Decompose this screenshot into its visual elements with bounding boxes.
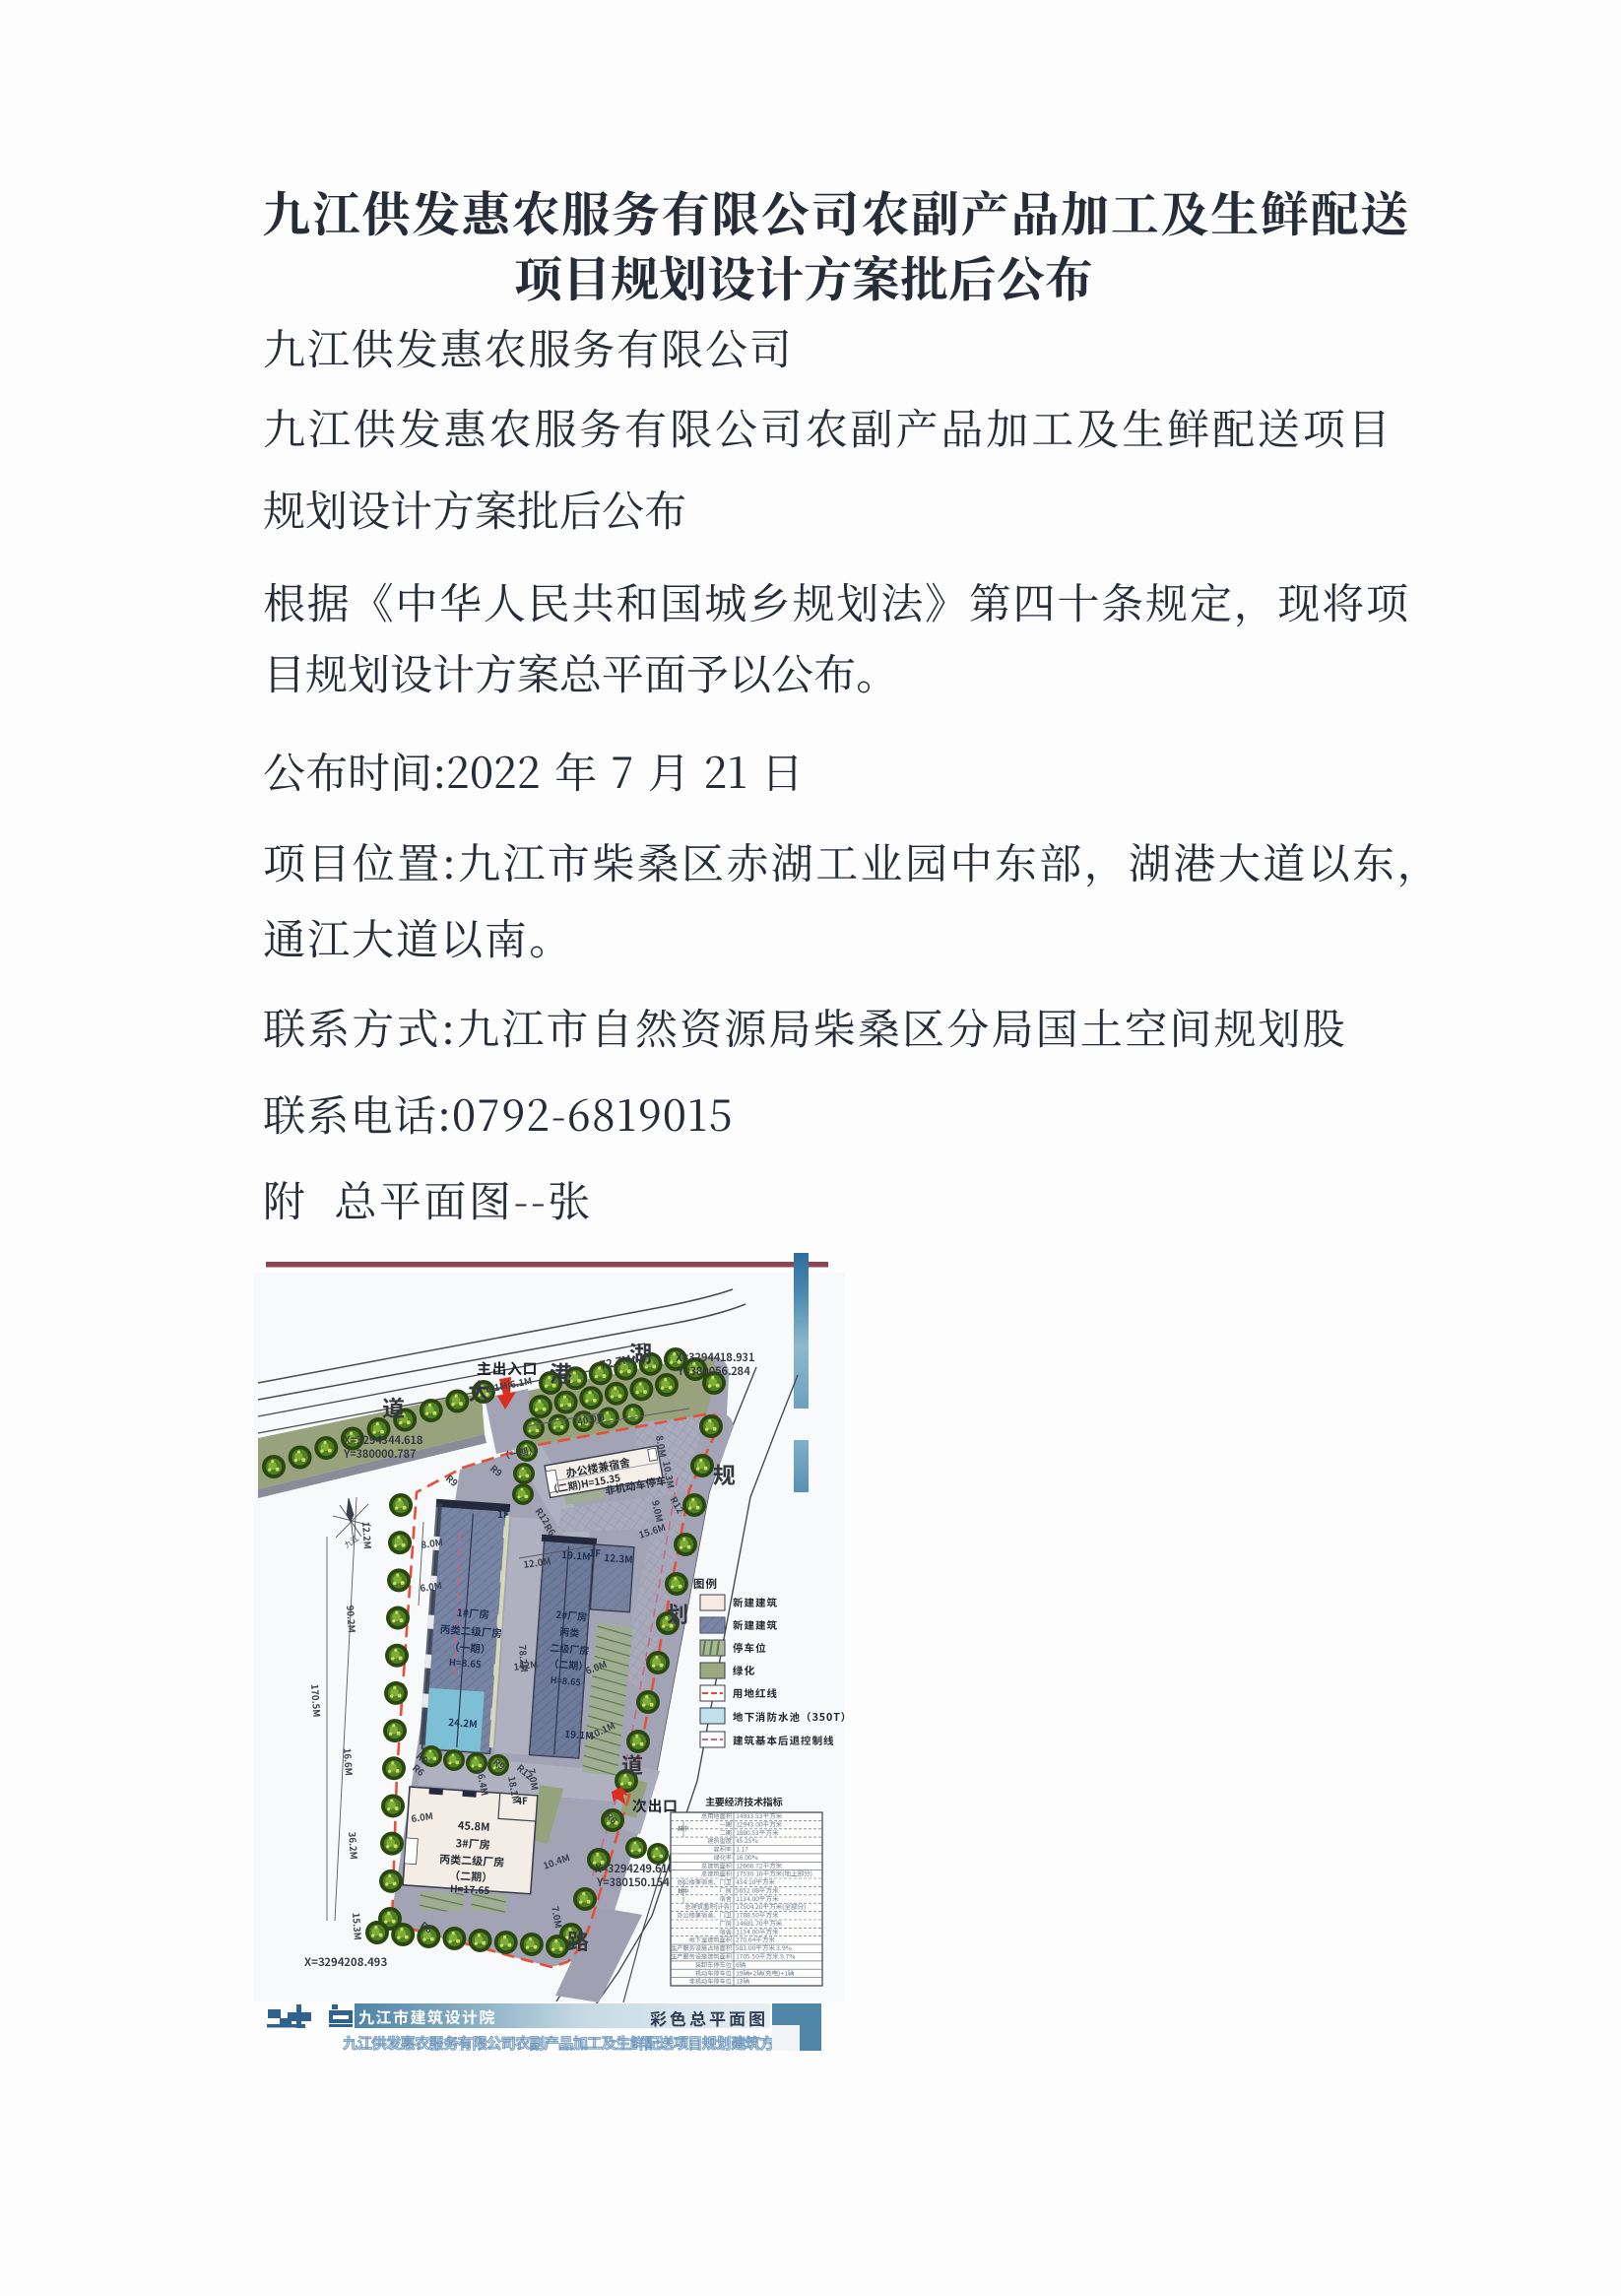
svg-text:X=3294208.493: X=3294208.493 [304,1954,387,1970]
svg-text:16.6M: 16.6M [341,1747,357,1776]
svg-text:1F: 1F [589,1544,602,1560]
svg-text:彩色总平面图: 彩色总平面图 [649,2005,768,2030]
svg-text:H=17.65: H=17.65 [450,1880,490,1897]
svg-text:九江供发惠农服务有限公司农副产品加工及生鲜配送项目规划建筑方: 九江供发惠农服务有限公司农副产品加工及生鲜配送项目规划建筑方案 [343,2032,790,2054]
svg-text:其中: 其中 [678,1823,689,1832]
svg-text:停车位: 停车位 [733,1641,767,1656]
svg-text:90.2M: 90.2M [344,1605,359,1633]
svg-text:丙类: 丙类 [559,1623,581,1640]
svg-text:H=8.65: H=8.65 [550,1673,582,1689]
svg-text:非机动车停车位: 非机动车停车位 [689,1977,732,1986]
svg-text:新建建筑: 新建建筑 [733,1596,778,1610]
svg-text:其中: 其中 [678,1886,689,1895]
svg-text:15.3M: 15.3M [350,1912,365,1940]
svg-text:12.2M: 12.2M [359,1521,375,1549]
svg-text:1#厂房: 1#厂房 [456,1606,490,1622]
svg-text:划: 划 [667,1598,688,1629]
svg-text:Y=380150.154: Y=380150.154 [597,1874,670,1890]
svg-text:主要经济技术指标: 主要经济技术指标 [705,1794,783,1808]
svg-text:13辆: 13辆 [736,1976,749,1986]
svg-text:Y=380000.787: Y=380000.787 [344,1446,416,1462]
svg-text:1F: 1F [497,1506,509,1521]
svg-text:3#厂房: 3#厂房 [455,1835,490,1853]
svg-text:24.2M: 24.2M [448,1714,478,1731]
svg-text:图例: 图例 [693,1576,718,1592]
svg-text:新建建筑: 新建建筑 [733,1618,778,1633]
svg-text:规: 规 [713,1457,736,1490]
svg-text:道: 道 [382,1390,405,1423]
svg-text:H=8.65: H=8.65 [448,1655,482,1671]
svg-text:12.3M: 12.3M [604,1549,633,1566]
svg-text:Y=380056.284: Y=380056.284 [678,1363,750,1379]
svg-text:19.1M: 19.1M [561,1546,591,1563]
svg-text:九江市建筑设计院: 九江市建筑设计院 [358,2004,496,2028]
svg-text:建筑基本后退控制线: 建筑基本后退控制线 [733,1734,835,1748]
svg-text:2#厂房: 2#厂房 [555,1607,589,1624]
svg-text:道: 道 [621,1748,643,1780]
svg-text:路: 路 [567,1925,589,1956]
svg-text:地下消防水池（350T）: 地下消防水池（350T） [733,1710,852,1725]
svg-text:36.2M: 36.2M [346,1831,361,1860]
svg-text:绿化: 绿化 [733,1664,755,1678]
svg-text:用地红线: 用地红线 [733,1686,778,1701]
svg-text:170.5M: 170.5M [308,1683,324,1718]
svg-text:港: 港 [550,1355,572,1389]
svg-text:45.8M: 45.8M [458,1817,490,1835]
svg-text:湖: 湖 [629,1336,652,1369]
